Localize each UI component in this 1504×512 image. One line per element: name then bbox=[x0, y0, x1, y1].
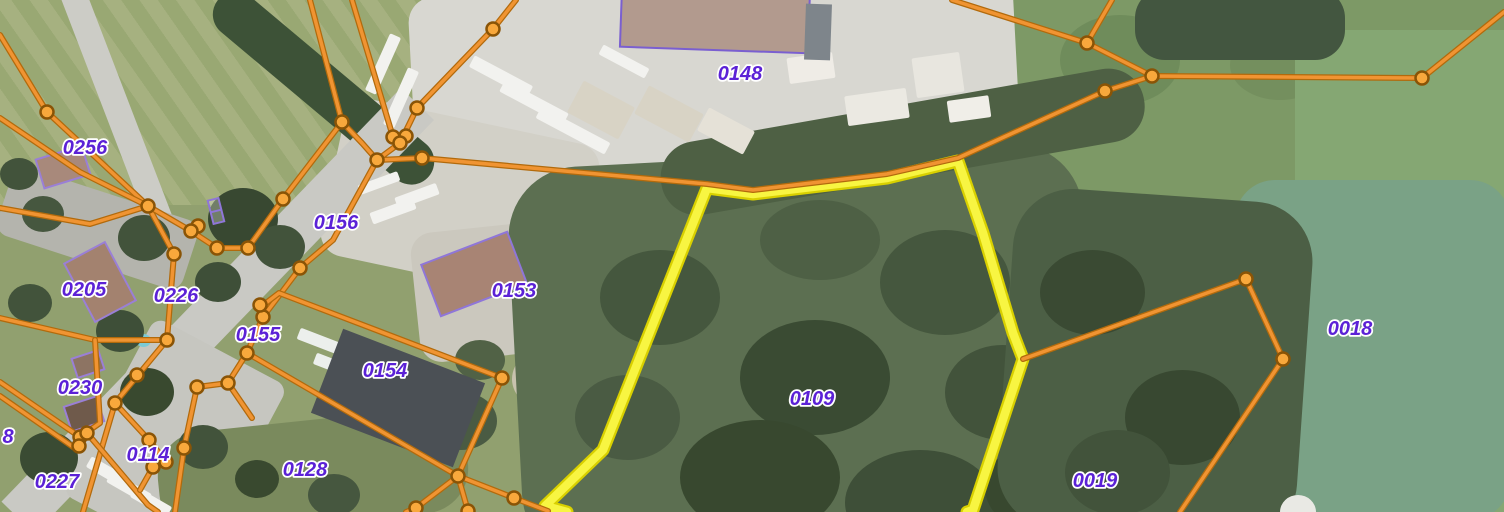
parcel-boundary-east-parcel-0018-0019 bbox=[1023, 279, 1283, 512]
boundary-vertex bbox=[410, 502, 423, 512]
boundary-vertex bbox=[462, 505, 475, 512]
boundary-vertex bbox=[109, 397, 122, 410]
boundary-vertex bbox=[178, 442, 191, 455]
parcel-label-0128: 0128 bbox=[283, 459, 328, 481]
boundary-vertex bbox=[142, 200, 155, 213]
boundary-vertex bbox=[496, 372, 509, 385]
selected-parcel-outline[interactable] bbox=[545, 161, 1023, 512]
boundary-vertex bbox=[336, 116, 349, 129]
boundary-vertex bbox=[41, 106, 54, 119]
warehouse-0148-annex bbox=[804, 4, 832, 61]
boundary-vertex bbox=[241, 347, 254, 360]
boundary-vertex bbox=[1146, 70, 1159, 83]
parcel-label-0156: 0156 bbox=[314, 212, 359, 234]
selected-parcel-outline-edge bbox=[545, 161, 1023, 512]
parcel-boundary-northeast-fork-west bbox=[952, 0, 1087, 43]
map-symbol bbox=[208, 198, 224, 224]
boundary-vertex bbox=[1240, 273, 1253, 286]
parcel-label-0018: 0018 bbox=[1328, 318, 1373, 340]
boundary-vertex bbox=[452, 470, 465, 483]
boundary-vertex bbox=[1099, 85, 1112, 98]
boundary-vertex bbox=[131, 369, 144, 382]
parcel-label-0205: 0205 bbox=[62, 279, 107, 301]
boundary-vertex bbox=[211, 242, 224, 255]
parcel-boundary-parcel-0155-west-block bbox=[175, 353, 247, 512]
boundary-vertex bbox=[254, 299, 267, 312]
boundary-vertex bbox=[168, 248, 181, 261]
boundary-vertex bbox=[416, 152, 429, 165]
boundary-vertex bbox=[81, 427, 94, 440]
cadastral-overlay[interactable]: 0256020502260156015301550154023001140227… bbox=[0, 0, 1504, 512]
building-0153 bbox=[421, 232, 527, 316]
boundary-vertex bbox=[185, 225, 198, 238]
parcel-label-0230: 0230 bbox=[58, 377, 103, 399]
building-0154 bbox=[311, 329, 485, 467]
boundary-vertex bbox=[161, 334, 174, 347]
boundary-vertex bbox=[222, 377, 235, 390]
boundary-vertex bbox=[277, 193, 290, 206]
boundary-vertex bbox=[508, 492, 521, 505]
parcel-label-0153: 0153 bbox=[492, 280, 537, 302]
parcel-boundary-entrance-west-edge bbox=[310, 0, 377, 160]
boundary-vertex bbox=[1081, 37, 1094, 50]
parcel-label-0154: 0154 bbox=[363, 360, 408, 382]
map-canvas[interactable]: 0256020502260156015301550154023001140227… bbox=[0, 0, 1504, 512]
boundary-vertex bbox=[191, 381, 204, 394]
parcel-label-0019: 0019 bbox=[1073, 470, 1118, 492]
parcel-label-8: 8 bbox=[2, 426, 14, 448]
parcel-label-0148: 0148 bbox=[718, 63, 763, 85]
parcel-boundary-edge-entrance-west-edge bbox=[310, 0, 377, 160]
parcel-label-0227: 0227 bbox=[35, 471, 80, 493]
boundary-vertex bbox=[1277, 353, 1290, 366]
parcel-label-0114: 0114 bbox=[126, 444, 169, 466]
boundary-vertex bbox=[394, 137, 407, 150]
parcel-label-0109: 0109 bbox=[790, 388, 835, 410]
parcel-label-0155: 0155 bbox=[236, 324, 281, 346]
boundary-vertex bbox=[73, 440, 86, 453]
parcel-boundary-northeast-fork-join bbox=[1087, 43, 1152, 76]
parcel-boundary-north-industrial-boundary bbox=[377, 12, 1504, 190]
boundary-vertex bbox=[294, 262, 307, 275]
parcel-label-0226: 0226 bbox=[154, 285, 199, 307]
parcel-boundary-entrance-spur bbox=[400, 0, 516, 143]
warehouse-0148 bbox=[620, 0, 810, 53]
boundary-vertex bbox=[242, 242, 255, 255]
boundary-vertex bbox=[487, 23, 500, 36]
boundary-vertex bbox=[1416, 72, 1429, 85]
boundary-vertex bbox=[411, 102, 424, 115]
boundary-vertex bbox=[371, 154, 384, 167]
parcel-label-0256: 0256 bbox=[63, 137, 108, 159]
